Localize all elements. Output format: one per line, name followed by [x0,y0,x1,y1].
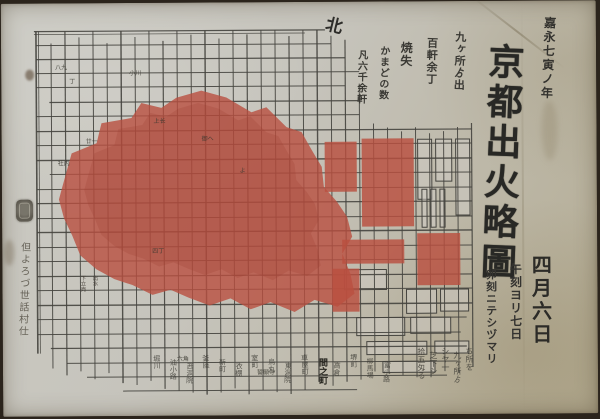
note-column: 拾五匁る [417,347,425,379]
map-block-label: 廿一 [86,137,98,145]
burned-block [362,138,415,226]
street-name-label: 油小路 [169,359,176,380]
map-inner-street-label: 下立売 [79,275,86,293]
street-name-label: 東洞院 [284,362,292,383]
map-block-label: 上长 [153,117,165,125]
era-date-column: 嘉永七寅ノ年 [540,16,556,100]
fire-stat-column: 百軒余丁 [425,37,437,85]
map-block-label: よ [240,167,246,174]
fire-time-end: 卯刻ニテシヅマリ [485,269,497,365]
city-block [422,189,427,227]
note-column: ち所を [465,347,473,371]
map-block-label: 四丁 [152,248,164,255]
note-column: 芝下シ [429,351,437,375]
note-column: シヤ一 [441,347,449,371]
burned-block [325,142,357,192]
fire-statistics-columns: 九ヶ所ゟ出百軒余丁焼失かまどの数凡六千余軒 [1,0,596,4]
street-name-label: 西洞院 [185,363,193,384]
street-name-label: 衣棚 [235,362,243,376]
street-name-label: 堺町 [349,353,357,367]
street-name-label: 釜座 [202,354,210,368]
map-block-label: 社内 [58,159,70,167]
note-column: 九ヶ所ゟ [453,351,461,383]
small-notes-columns: ち所を九ヶ所ゟシヤ一芝下シ拾五匁る [1,0,596,4]
map-paper-sheet: 八九丁小川上长御へ廿一社内四丁よ六角誓願寺下立売出水 北 嘉永七寅ノ年 京都出火… [1,0,599,417]
map-block-label: 御へ [202,135,214,143]
city-block [406,289,436,313]
street-line [36,44,331,46]
street-name-label: 柳馬場 [366,358,373,379]
map-block-label: 六角 [177,355,189,363]
kyoto-street-map: 八九丁小川上长御へ廿一社内四丁よ六角誓願寺下立売出水 [25,21,479,406]
burned-block [417,233,460,285]
publisher-seal [16,200,33,222]
burned-block [332,269,359,312]
north-label: 北 [321,14,342,36]
burned-area-overlay [58,89,460,313]
fire-stat-column: 焼失 [400,41,413,67]
street-name-label: 烏丸 [268,358,275,372]
fire-date-main: 四月六日 [530,254,551,346]
paper-stain [541,100,557,160]
map-block-label: 丁 [69,78,75,85]
street-line [416,127,418,377]
street-name-label: 室町 [251,354,259,368]
street-name-label: 新町 [219,358,226,372]
city-block [431,189,436,227]
street-name-label: 富小路 [382,361,390,382]
fire-stat-column: 九ヶ所ゟ出 [453,31,466,91]
street-line [123,390,357,391]
street-line [345,40,347,382]
street-name-label: 間之町 [317,358,326,385]
fire-time-start: 午刻ヨリ七日 [509,263,521,341]
street-line [36,72,359,74]
photo-of-old-kyoto-fire-map: 八九丁小川上长御へ廿一社内四丁よ六角誓願寺下立売出水 北 嘉永七寅ノ年 京都出火… [0,0,600,419]
map-block-label: 小川 [129,69,141,77]
street-name-label: 高倉 [333,362,341,376]
left-margin-annotation: 但よろづ世話村仕 [16,242,29,338]
fire-stat-column: 凡六千余軒 [354,49,366,104]
street-name-label: 堀川 [153,355,161,369]
map-block-label: 八九 [55,63,67,71]
street-line [34,30,325,32]
map-title: 京都出火略圖 [477,42,522,283]
paper-stain [4,240,14,266]
map-inner-street-label: 出水 [91,274,98,287]
street-name-label: 車屋町 [300,354,308,375]
fire-stat-column: かまどの数 [376,45,388,100]
street-line [34,33,305,35]
burned-block [342,239,404,263]
bottom-street-labels: 堀川油小路西洞院釜座新町衣棚室町烏丸東洞院車屋町間之町高倉堺町柳馬場富小路 [1,0,596,4]
